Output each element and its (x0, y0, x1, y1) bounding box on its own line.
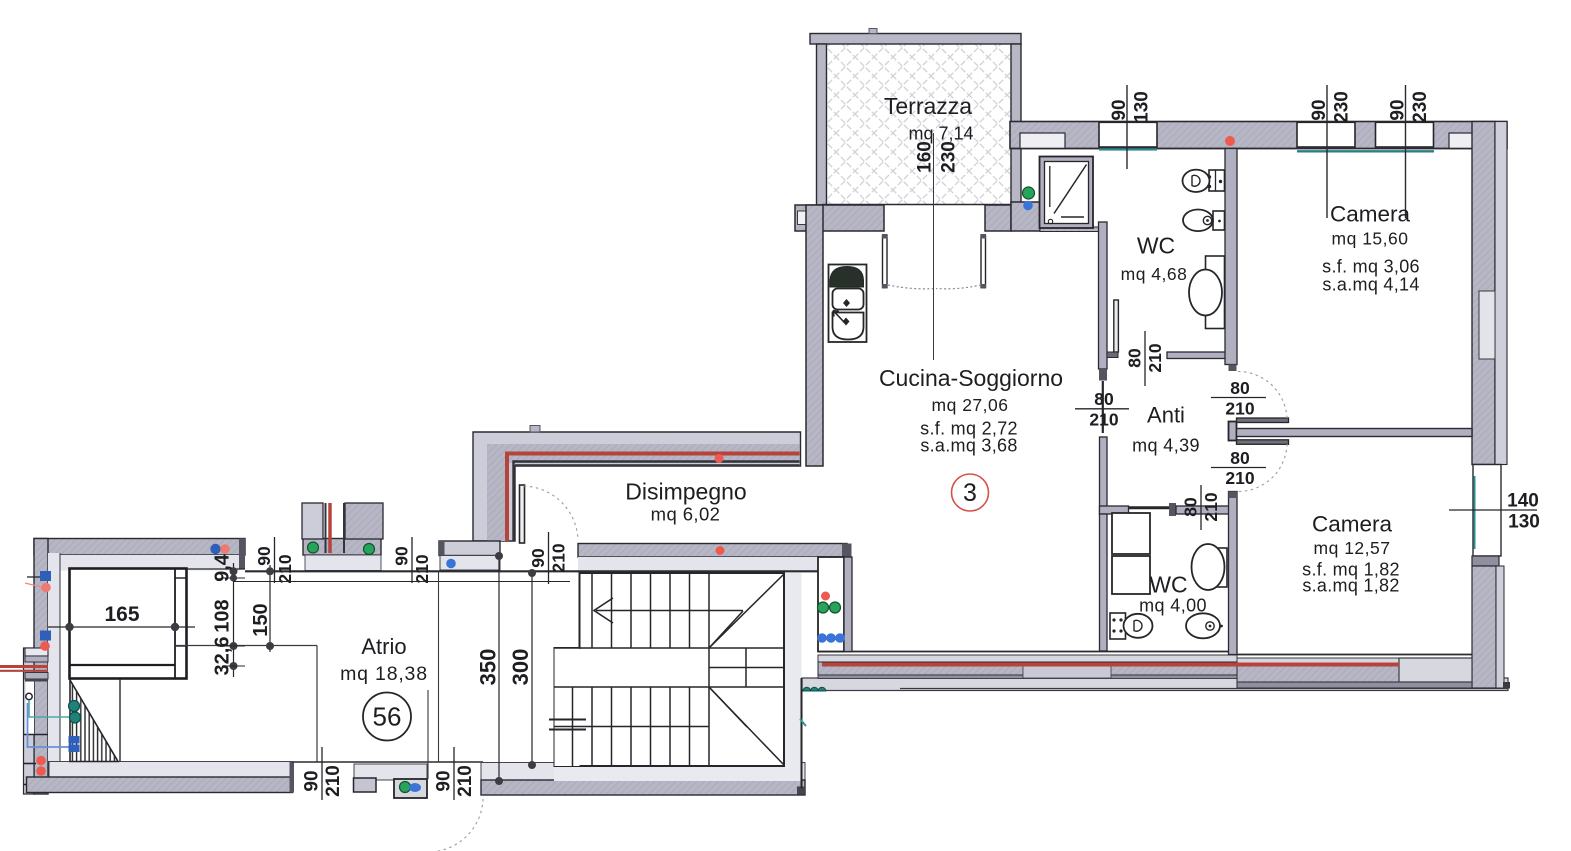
svg-text:s.a.mq 1,82: s.a.mq 1,82 (1302, 576, 1399, 596)
svg-text:210: 210 (1225, 468, 1254, 488)
svg-text:130: 130 (1132, 91, 1153, 123)
svg-text:108: 108 (212, 599, 234, 632)
svg-text:90: 90 (302, 770, 323, 791)
svg-text:32,6: 32,6 (212, 637, 234, 676)
svg-text:160: 160 (915, 141, 936, 173)
svg-text:80: 80 (1230, 378, 1250, 398)
svg-text:mq 6,02: mq 6,02 (651, 504, 721, 525)
svg-text:56: 56 (373, 702, 402, 732)
svg-text:Anti: Anti (1147, 403, 1185, 428)
svg-text:mq 12,57: mq 12,57 (1314, 538, 1391, 558)
svg-text:80: 80 (1125, 348, 1145, 368)
svg-text:140: 140 (1507, 491, 1539, 512)
svg-text:s.f. mq 3,06: s.f. mq 3,06 (1322, 257, 1420, 277)
svg-text:WC: WC (1137, 233, 1175, 259)
svg-text:s.a.mq 4,14: s.a.mq 4,14 (1322, 275, 1419, 295)
svg-text:130: 130 (1508, 512, 1540, 533)
svg-text:WC: WC (1149, 572, 1187, 598)
svg-text:80: 80 (1181, 497, 1201, 517)
svg-text:90: 90 (528, 548, 548, 568)
svg-text:210: 210 (412, 554, 432, 583)
svg-text:210: 210 (1201, 492, 1221, 521)
svg-text:210: 210 (549, 543, 569, 572)
svg-text:mq 27,06: mq 27,06 (932, 395, 1009, 415)
svg-text:80: 80 (1230, 448, 1250, 468)
svg-text:90: 90 (254, 546, 274, 566)
svg-text:Camera: Camera (1312, 512, 1393, 537)
svg-text:210: 210 (323, 765, 344, 797)
svg-text:165: 165 (104, 603, 139, 626)
svg-text:3: 3 (963, 479, 977, 507)
svg-text:90: 90 (434, 770, 455, 791)
svg-text:230: 230 (1410, 91, 1431, 123)
svg-text:210: 210 (1145, 343, 1165, 372)
svg-text:90: 90 (1109, 99, 1130, 120)
svg-text:230: 230 (939, 141, 960, 173)
svg-text:210: 210 (1225, 399, 1254, 419)
svg-text:90: 90 (1388, 99, 1409, 120)
svg-text:Disimpegno: Disimpegno (625, 479, 746, 505)
svg-text:9,4: 9,4 (212, 553, 234, 582)
svg-text:mq 4,39: mq 4,39 (1132, 436, 1200, 456)
svg-text:Cucina-Soggiorno: Cucina-Soggiorno (879, 365, 1063, 391)
svg-text:s.a.mq 3,68: s.a.mq 3,68 (920, 436, 1017, 456)
svg-text:210: 210 (275, 554, 295, 583)
svg-text:mq 4,00: mq 4,00 (1139, 596, 1207, 616)
svg-text:mq 4,68: mq 4,68 (1121, 264, 1188, 284)
svg-text:90: 90 (392, 546, 412, 566)
svg-text:mq 15,60: mq 15,60 (1332, 229, 1409, 249)
svg-text:mq 7,14: mq 7,14 (908, 124, 973, 144)
svg-text:210: 210 (455, 765, 476, 797)
svg-text:300: 300 (508, 649, 533, 686)
svg-text:210: 210 (1089, 410, 1118, 430)
svg-text:Atrio: Atrio (361, 634, 406, 659)
svg-text:230: 230 (1332, 91, 1353, 123)
svg-text:Camera: Camera (1330, 201, 1411, 226)
svg-text:90: 90 (1309, 99, 1330, 120)
svg-text:80: 80 (1094, 389, 1114, 409)
svg-text:350: 350 (476, 649, 501, 686)
svg-text:mq 18,38: mq 18,38 (340, 663, 428, 685)
svg-text:150: 150 (250, 603, 272, 636)
svg-text:Terrazza: Terrazza (884, 93, 972, 119)
